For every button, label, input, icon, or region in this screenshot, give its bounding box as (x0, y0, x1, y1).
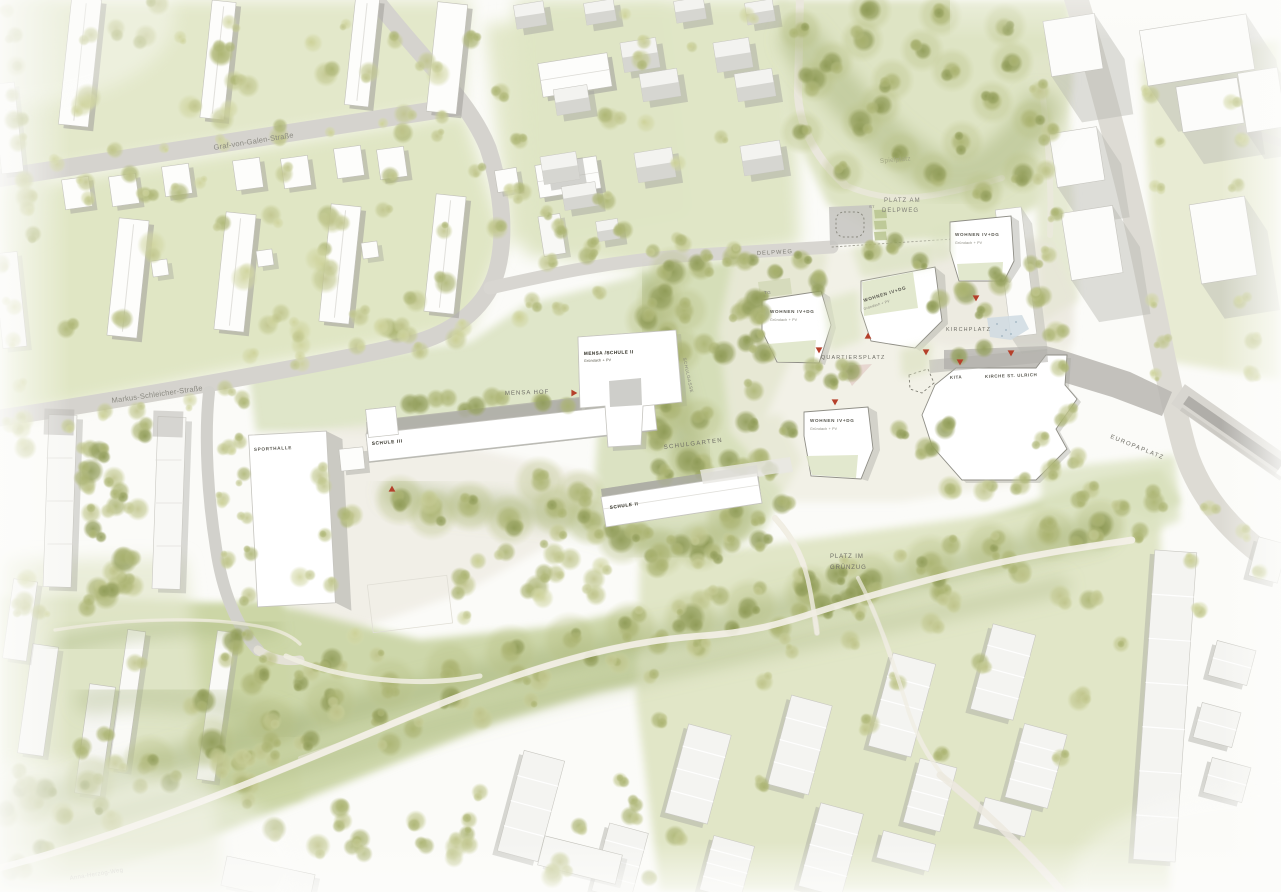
svg-text:WOHNEN IV+DG: WOHNEN IV+DG (955, 232, 1000, 237)
svg-text:GRÜNZUG: GRÜNZUG (830, 564, 867, 571)
svg-text:Gründach + PV: Gründach + PV (810, 427, 838, 431)
svg-text:WOHNEN IV+DG: WOHNEN IV+DG (810, 418, 855, 423)
svg-text:QUARTIERSPLATZ: QUARTIERSPLATZ (821, 355, 886, 361)
svg-text:TG: TG (764, 290, 771, 295)
svg-text:KITA: KITA (950, 374, 963, 380)
svg-text:KIRCHPLATZ: KIRCHPLATZ (946, 327, 991, 333)
svg-text:WOHNEN IV+DG: WOHNEN IV+DG (770, 309, 815, 314)
svg-text:PLATZ IM: PLATZ IM (830, 554, 864, 560)
svg-text:PLATZ AM: PLATZ AM (884, 198, 921, 204)
svg-text:Gründach + PV: Gründach + PV (955, 241, 983, 245)
svg-text:Gründach + PV: Gründach + PV (770, 318, 798, 322)
svg-text:DELPWEG: DELPWEG (882, 208, 919, 214)
svg-text:ST: ST (869, 204, 875, 209)
